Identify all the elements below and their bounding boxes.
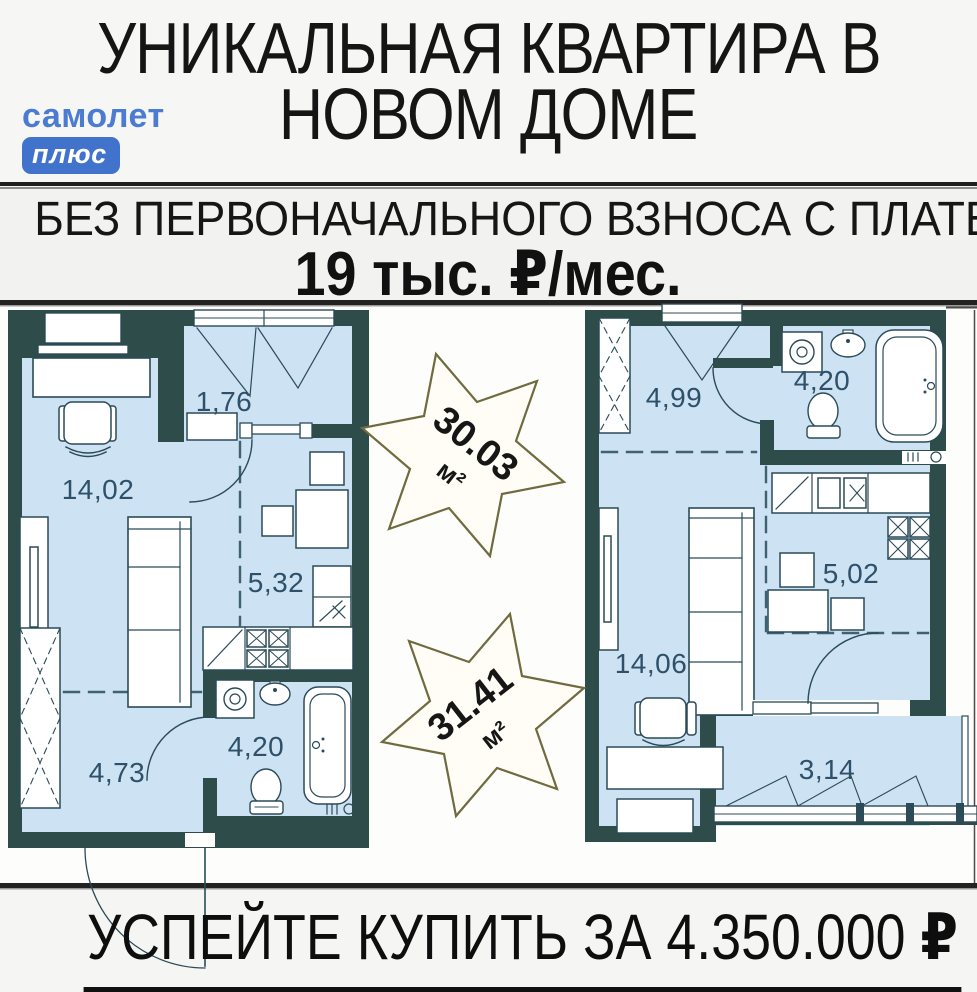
- divider-top-dark: [0, 182, 977, 186]
- radiator-right-icon: [599, 508, 618, 650]
- divider-plans-bottom-shadow: [0, 888, 977, 890]
- brand-badge: плюс: [22, 137, 120, 174]
- divider-plans-bottom: [0, 883, 977, 888]
- kitchen-side-table-icon: [831, 598, 864, 630]
- room-label-living-left: 14,02: [62, 474, 135, 505]
- desk-right-icon: [607, 747, 723, 789]
- balcony-sill-icon: [753, 702, 811, 714]
- kitchen-table-icon: [296, 490, 348, 548]
- cta-band: УСПЕЙТЕ КУПИТЬ ЗА 4.350.000 ₽: [0, 900, 977, 992]
- desk-icon: [33, 358, 150, 397]
- room-label-hall-left: 1,76: [196, 386, 253, 417]
- cta-text: УСПЕЙТЕ КУПИТЬ ЗА 4.350.000 ₽: [84, 900, 962, 992]
- header-band: УНИКАЛЬНАЯ КВАРТИРА В НОВОМ ДОМЕ самолет…: [0, 0, 977, 182]
- offer-band: БЕЗ ПЕРВОНАЧАЛЬНОГО ВЗНОСА С ПЛАТЕЖОМ 19…: [0, 189, 977, 300]
- kitchen-chair-icon: [262, 506, 293, 536]
- title-line-2: НОВОМ ДОМЕ: [279, 82, 698, 148]
- bathtub-icon: [304, 687, 351, 804]
- balcony-door-leaf-icon: [811, 703, 878, 713]
- sofa-right-icon: [689, 508, 754, 715]
- wardrobe-right-icon: [599, 318, 630, 433]
- vent-right-icon: [902, 451, 946, 464]
- room-label-bathroom-right: 4,20: [794, 365, 851, 396]
- washing-machine-icon: [216, 680, 254, 718]
- brand-logo: самолет плюс: [22, 98, 165, 174]
- ruble-sign: ₽: [920, 901, 957, 973]
- room-label-kitchen-right: 5,02: [823, 558, 880, 589]
- toilet-icon: [250, 769, 283, 814]
- window-bay-icon: [38, 313, 128, 354]
- sofa-icon: [128, 517, 191, 707]
- balcony-frame-right: [962, 716, 968, 808]
- cta-label: УСПЕЙТЕ КУПИТЬ ЗА 4.350.000: [87, 901, 921, 973]
- toilet-right-icon: [807, 393, 840, 438]
- kitchen-table-right-icon: [768, 590, 828, 632]
- room-label-corridor-left: 4,73: [89, 757, 146, 788]
- room-label-balcony-right: 3,14: [799, 754, 856, 785]
- room-label-bathroom-left: 4,20: [228, 731, 285, 762]
- counter-stove-icon: [203, 627, 353, 670]
- bathtub-right-icon: [876, 330, 943, 442]
- floor-plans-canvas: 1,76 14,02 5,32 4,73 4,20: [0, 300, 977, 975]
- fridge-icon: [310, 452, 344, 485]
- room-label-hall-right: 4,99: [646, 382, 703, 413]
- room-label-kitchen-left: 5,32: [248, 567, 305, 598]
- counter-right-icon: [772, 473, 930, 513]
- brand-name: самолет: [22, 98, 165, 134]
- room-label-living-right: 14,06: [615, 648, 688, 679]
- entry-opening: [185, 833, 215, 847]
- kitchen-chair-right-icon: [780, 553, 814, 587]
- floor-plan-right: 4,99 4,20 5,02 14,06 3,14: [585, 304, 977, 842]
- sink-counter-icon: [313, 566, 351, 627]
- desk-right-base-icon: [617, 799, 693, 833]
- hall-cabinet-icon: [187, 413, 237, 440]
- title-line-1: УНИКАЛЬНАЯ КВАРТИРА В: [97, 16, 881, 82]
- wardrobe-icon: [20, 628, 60, 808]
- flyer-page: УНИКАЛЬНАЯ КВАРТИРА В НОВОМ ДОМЕ самолет…: [0, 0, 977, 992]
- divider-plans-top: [0, 300, 977, 305]
- divider-plans-top-shadow: [0, 305, 977, 307]
